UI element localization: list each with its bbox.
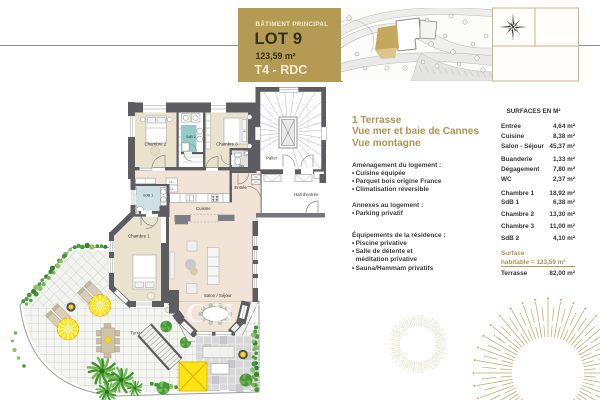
svg-text:SdB 1: SdB 1 xyxy=(143,194,153,198)
svg-text:Entrée: Entrée xyxy=(235,185,248,190)
svg-text:L.L: L.L xyxy=(169,180,174,184)
svg-text:Palier: Palier xyxy=(266,156,278,161)
svg-text:CHN: CHN xyxy=(186,298,267,328)
svg-text:Chambre 3: Chambre 3 xyxy=(216,141,238,146)
svg-text:S.L: S.L xyxy=(169,187,174,191)
svg-text:Chambre 2: Chambre 2 xyxy=(145,142,167,147)
svg-text:Chambre 1: Chambre 1 xyxy=(128,234,150,239)
svg-text:Salon / Séjour: Salon / Séjour xyxy=(204,293,232,298)
svg-text:Hall d'entrée: Hall d'entrée xyxy=(294,192,319,197)
svg-text:Wc: Wc xyxy=(239,164,244,168)
svg-text:SdB 2: SdB 2 xyxy=(186,135,196,139)
svg-text:Cuisine: Cuisine xyxy=(196,206,211,211)
